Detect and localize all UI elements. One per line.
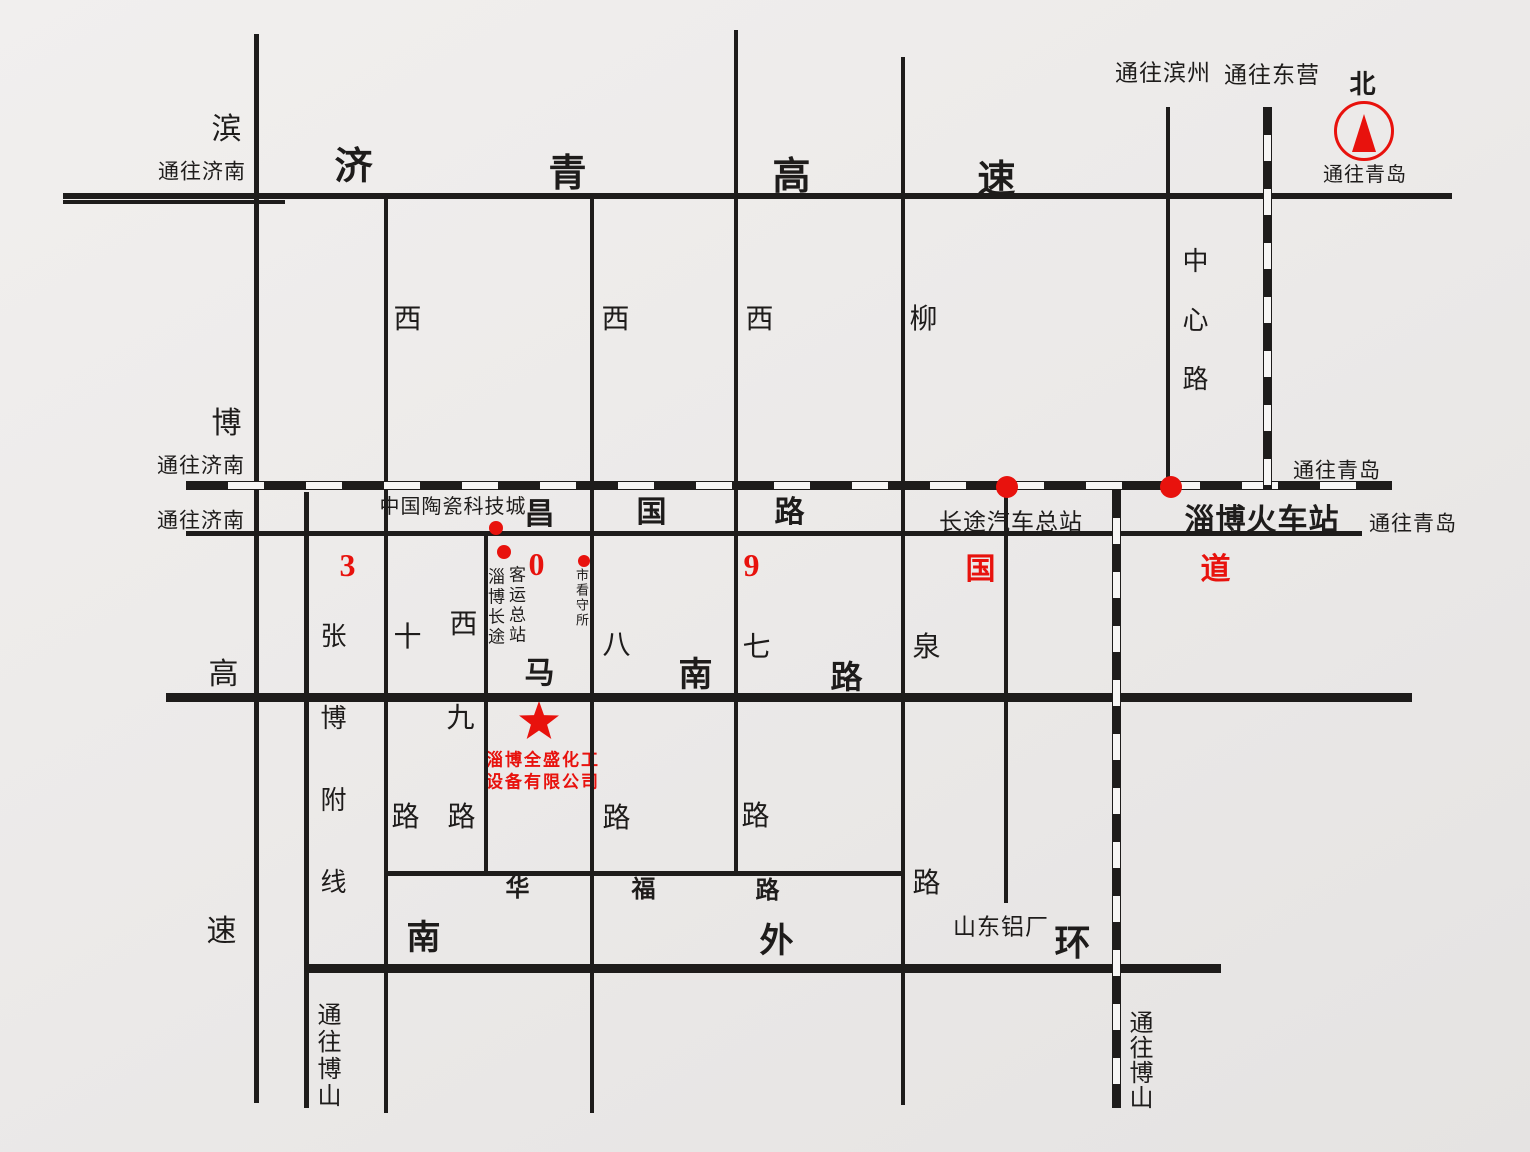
to-boshan-right-char-0: 通: [1130, 1012, 1155, 1036]
g309-digit-3: 3: [340, 549, 357, 581]
zhongxin-road: [1166, 107, 1170, 490]
jiqing-ji: 济: [334, 148, 373, 186]
changguo-chang: 昌: [525, 500, 556, 530]
zhangbo-branch-label-char-3: 线: [320, 870, 347, 896]
to-boshan-left-char-3: 山: [318, 1085, 343, 1109]
to-binzhou: 通往滨州: [1115, 62, 1211, 85]
to-boshan-right-char-3: 山: [1130, 1087, 1155, 1111]
jiqing-expressway: [63, 193, 1452, 199]
xijiu-xi: 西: [449, 611, 478, 639]
xishi-shi: 十: [393, 624, 422, 652]
xishi-road: [384, 196, 388, 1113]
huafu-road: [387, 871, 903, 876]
coach-terminal-col1-char-0: 淄: [488, 569, 506, 586]
liuquan-lu: 路: [912, 870, 941, 898]
dot-detention-house: [578, 555, 590, 567]
dot-bus-terminal: [996, 476, 1018, 498]
manan-lu: 路: [830, 661, 863, 693]
railway-jinan-qingdao: [186, 481, 1392, 490]
xiqi-lu: 路: [741, 803, 770, 831]
jiqing-su: 速: [977, 161, 1016, 199]
railway-to-boshan: [1112, 490, 1121, 1108]
coach-terminal-col2-char-0: 客: [509, 567, 527, 584]
dot-coach-terminal: [497, 545, 511, 559]
xiqi-xi-top: 西: [745, 306, 774, 334]
company-star-icon: [516, 699, 562, 745]
g309-digit-0: 0: [529, 548, 546, 580]
to-jinan-railway: 通往济南: [157, 456, 245, 477]
zhangbo-branch-label-char-1: 博: [320, 706, 347, 732]
g309-digit-9: 9: [744, 549, 761, 581]
detention-label-char-1: 看: [576, 584, 590, 597]
liuquan-quan: 泉: [912, 634, 941, 662]
binbo-gao: 高: [209, 660, 240, 690]
liuquan-liu: 柳: [909, 306, 938, 334]
coach-terminal-col2-char-1: 运: [509, 587, 527, 604]
zhangbo-branch-label-char-2: 附: [320, 788, 347, 814]
binbo-bo: 博: [212, 409, 243, 439]
bus-station-road: [1004, 490, 1008, 903]
huafu-fu: 福: [632, 878, 657, 902]
zhongxin-road-label-char-0: 中: [1182, 249, 1209, 275]
g309-guo: 国: [966, 555, 997, 585]
xiba-ba: 八: [602, 632, 631, 660]
map-stage: 北 通往青岛 淄博全盛化工 设备有限公司 滨博高速通往济南通往济南通往济南济青高…: [0, 0, 1530, 1152]
railway-to-dongying: [1263, 107, 1272, 490]
south-outer-ring: [307, 964, 1221, 973]
ring-huan: 环: [1054, 925, 1091, 961]
coach-terminal-col2-char-2: 总: [509, 607, 527, 624]
xiqi-road: [734, 30, 738, 873]
zhongxin-road-label-char-1: 心: [1182, 308, 1209, 334]
manan-nan: 南: [679, 659, 714, 693]
dot-train-station: [1160, 476, 1182, 498]
xishi-lu: 路: [391, 804, 420, 832]
binbo-expressway: [254, 34, 259, 1103]
ring-wai: 外: [760, 925, 795, 959]
zhangbo-branch-label-char-0: 张: [320, 624, 347, 650]
detention-label-char-2: 守: [576, 599, 590, 612]
ring-nan: 南: [407, 922, 442, 956]
binbo-bin: 滨: [212, 115, 243, 145]
to-dongying: 通往东营: [1224, 64, 1320, 87]
train-station-label: 淄博火车站: [1185, 506, 1340, 536]
jiqing-qing: 青: [548, 155, 587, 193]
company-name-line2: 设备有限公司: [486, 768, 600, 793]
xijiu-jiu: 九: [446, 705, 475, 733]
manan-ma: 马: [525, 659, 556, 689]
zhangbo-branch-line: [304, 492, 309, 1108]
detention-label-char-0: 市: [576, 569, 590, 582]
bus-terminal-label: 长途汽车总站: [939, 511, 1083, 534]
to-boshan-left-char-0: 通: [318, 1004, 343, 1028]
huafu-hua: 华: [506, 877, 531, 901]
to-jinan-changguo: 通往济南: [157, 511, 245, 532]
ceramics-city-label: 中国陶瓷科技城: [380, 497, 527, 517]
huafu-lu: 路: [756, 879, 781, 903]
to-qingdao-compass-label: 通往青岛: [1323, 165, 1407, 185]
dot-ceramics-city: [489, 521, 503, 535]
detention-label-char-3: 所: [576, 614, 590, 627]
xiba-road: [590, 196, 594, 1113]
liuquan-road: [901, 57, 905, 1105]
to-boshan-left-char-2: 博: [318, 1058, 343, 1082]
to-jinan-top: 通往济南: [158, 162, 246, 183]
jiqing-gao: 高: [772, 158, 811, 196]
jiqing-expressway-jog: [63, 200, 285, 204]
changguo-lu: 路: [775, 498, 806, 528]
xishi-xi-top: 西: [393, 306, 422, 334]
binbo-su: 速: [207, 917, 238, 947]
compass-needle-icon: [1352, 114, 1376, 152]
changguo-guo: 国: [637, 498, 668, 528]
xiba-xi-top: 西: [601, 306, 630, 334]
to-boshan-right-char-2: 博: [1130, 1062, 1155, 1086]
to-qingdao-railway: 通往青岛: [1293, 461, 1381, 482]
to-boshan-right-char-1: 往: [1130, 1037, 1155, 1061]
g309-dao: 道: [1201, 555, 1232, 585]
xiba-lu: 路: [602, 805, 631, 833]
coach-terminal-col2-char-3: 站: [509, 627, 527, 644]
to-qingdao-changguo: 通往青岛: [1369, 514, 1457, 535]
north-label: 北: [1349, 72, 1376, 98]
zhongxin-road-label-char-2: 路: [1182, 367, 1209, 393]
manan-road: [166, 693, 1412, 702]
to-boshan-left-char-1: 往: [318, 1031, 343, 1055]
coach-terminal-col1-char-1: 博: [488, 589, 506, 606]
xiqi-qi: 七: [742, 634, 771, 662]
aluminum-plant-label: 山东铝厂: [953, 916, 1049, 939]
coach-terminal-col1-char-2: 长: [488, 609, 506, 626]
coach-terminal-col1-char-3: 途: [488, 629, 506, 646]
xijiu-lu: 路: [447, 804, 476, 832]
